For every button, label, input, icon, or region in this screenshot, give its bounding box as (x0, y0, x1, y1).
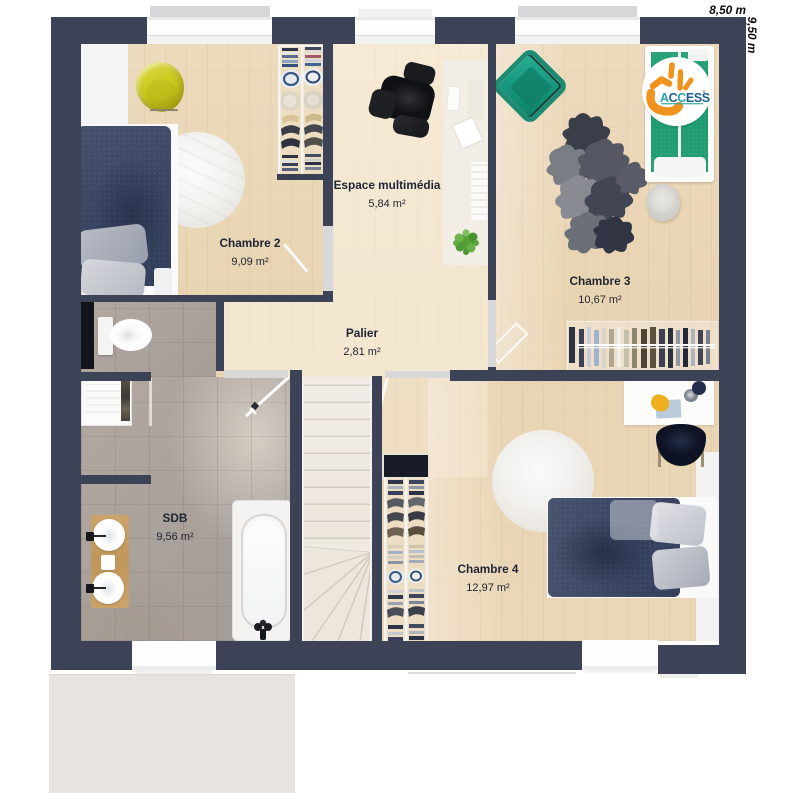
svg-text:ACCESS: ACCESS (660, 91, 710, 105)
